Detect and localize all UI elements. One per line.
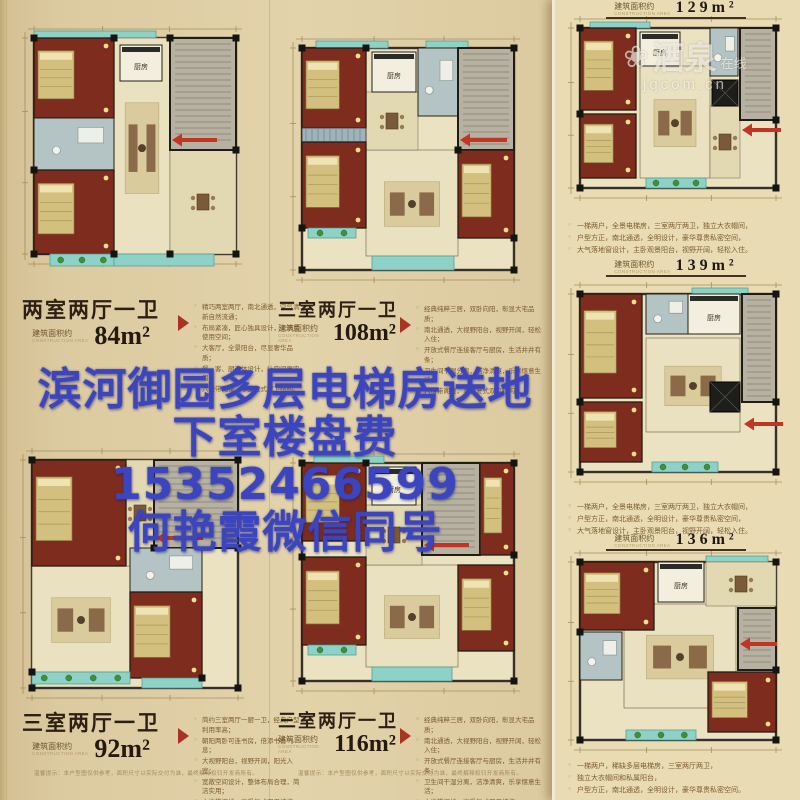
feature-bullet: 南北通透，大视野阳台，视野开阔，轻松入住； (416, 326, 546, 346)
svg-text:厨房: 厨房 (707, 313, 721, 322)
left-frame-line (6, 0, 7, 800)
feature-bullet: 一梯两户，全景电梯房，三室两厅两卫，独立大衣帽间， (568, 222, 796, 233)
area-prefix-en: CONSTRUCTION AREA (32, 338, 88, 343)
pointer-triangle-icon (178, 315, 189, 331)
area-value: 116m² (334, 734, 396, 756)
watermark-domain: jqcom.cn (575, 76, 795, 93)
area-prefix-en: CONSTRUCTION AREA (278, 744, 328, 754)
feature-bullet: 一梯两户，全景电梯房，三室两厅两卫，独立大衣帽间， (568, 503, 796, 514)
area-prefix: 建筑面积约CONSTRUCTION AREA (278, 735, 328, 755)
watermark: ❀ 酒泉 在线 jqcom.cn (575, 42, 795, 93)
feature-bullet: 南北通透，大视野阳台，视野开阔，轻松入住； (416, 737, 546, 757)
plan-title: 三室两厅一卫 (278, 301, 396, 320)
overlay-line-3: 何艳霞微信同号 (25, 509, 545, 557)
overlay-line-2: 下室楼盘费15352466599 (25, 414, 545, 509)
floor-plan-139sqm: 厨房 (560, 278, 796, 502)
svg-text:厨房: 厨房 (674, 581, 688, 590)
contact-overlay: 滨河御园多层电梯房送地 下室楼盘费15352466599 何艳霞微信同号 (25, 366, 545, 556)
area-value: 108m² (333, 323, 396, 345)
area-prefix: 建筑面积约CONSTRUCTION AREA (614, 260, 670, 274)
plan-84-title-block: 两室两厅一卫 建筑面积约CONSTRUCTION AREA 84m² (8, 299, 174, 347)
floor-plan-108sqm: 厨房 (274, 28, 542, 300)
area-prefix-en: CONSTRUCTION AREA (32, 751, 88, 756)
feature-bullet: 户型方正，南北通透，全明设计，豪华尊贵私密空间。 (568, 786, 796, 797)
plan-92-label-row: 三室两厅一卫 建筑面积约CONSTRUCTION AREA 92m² 简约三室两… (8, 712, 302, 800)
area-value: 139m² (676, 258, 738, 274)
area-prefix: 建筑面积约CONSTRUCTION AREA (32, 742, 88, 756)
watermark-suffix: 在线 (721, 53, 747, 72)
area-prefix-en: CONSTRUCTION AREA (614, 11, 670, 16)
feature-bullet: 经典纯粹三居，双卧向阳，彰显大宅品质； (416, 305, 546, 325)
feature-bullet: 卫生间干湿分离，洁净清爽，乐享惬意生活； (416, 778, 546, 798)
pointer-triangle-icon (400, 728, 411, 744)
disclaimer-left: 温馨提示：本户型图仅供参考，面积尺寸以实际交付为准，最终解释权归开发商所有。 (34, 769, 258, 777)
overlay-line-1: 滨河御园多层电梯房送地 (25, 366, 545, 414)
area-prefix-en: CONSTRUCTION AREA (278, 333, 327, 343)
area-value: 136m² (676, 532, 738, 548)
area-prefix: 建筑面积约CONSTRUCTION AREA (614, 534, 670, 548)
plan-136-area-label: 建筑面积约CONSTRUCTION AREA 136m² (556, 528, 796, 551)
plan-116-title-block: 三室两厅一卫 建筑面积约CONSTRUCTION AREA 116m² (278, 712, 396, 755)
area-prefix: 建筑面积约CONSTRUCTION AREA (32, 329, 88, 343)
plan-title: 两室两厅一卫 (8, 299, 174, 321)
area-value: 84m² (94, 324, 149, 347)
plan-title: 三室两厅一卫 (278, 712, 396, 731)
disclaimer-mid: 温馨提示：本户型图仅供参考，面积尺寸以实际交付为准，最终解释权归开发商所有。 (298, 769, 542, 777)
pointer-triangle-icon (178, 728, 189, 744)
plan-92-title-block: 三室两厅一卫 建筑面积约CONSTRUCTION AREA 92m² (8, 712, 174, 760)
watermark-flower-icon: ❀ (623, 43, 648, 73)
feature-bullet: 独立大衣帽间和私属阳台， (568, 774, 796, 785)
svg-text:厨房: 厨房 (134, 62, 148, 71)
svg-text:厨房: 厨房 (387, 71, 401, 80)
feature-bullet: 经典纯粹三居，双卧向阳，彰显大宅品质； (416, 716, 546, 736)
flyer-page: 厨房 厨房 厨房 厨房 厨房 厨房 两室两厅一卫 建筑面积约CONSTRUCTI… (0, 0, 800, 800)
area-value: 92m² (94, 737, 149, 760)
plan-title: 三室两厅一卫 (8, 712, 174, 734)
area-prefix-en: CONSTRUCTION AREA (614, 269, 670, 274)
plan-129-area-label: 建筑面积约CONSTRUCTION AREA 129m² (556, 0, 796, 19)
area-prefix: 建筑面积约CONSTRUCTION AREA (278, 324, 327, 344)
area-value: 129m² (676, 0, 738, 16)
floor-plan-136sqm: 厨房 (560, 548, 796, 756)
plan-139-area-label: 建筑面积约CONSTRUCTION AREA 139m² (556, 254, 796, 277)
area-prefix-en: CONSTRUCTION AREA (614, 543, 670, 548)
pointer-triangle-icon (400, 317, 411, 333)
feature-bullet: 户型方正，南北通透，全明设计，豪华尊贵私密空间， (568, 234, 796, 245)
plan-116-features: 经典纯粹三居，双卧向阳，彰显大宅品质；南北通透，大视野阳台，视野开阔，轻松入住；… (416, 716, 546, 800)
feature-bullet: 户型方正，南北通透，全明设计，豪华尊贵私密空间， (568, 515, 796, 526)
feature-bullet: 一梯两户，稀缺多层电梯房，三室两厅两卫， (568, 762, 796, 773)
plan-136-features: 一梯两户，稀缺多层电梯房，三室两厅两卫，独立大衣帽间和私属阳台，户型方正，南北通… (568, 762, 796, 798)
plan-129-features: 一梯两户，全景电梯房，三室两厅两卫，独立大衣帽间，户型方正，南北通透，全明设计，… (568, 222, 796, 258)
feature-bullet: 开放式餐厅连接客厅与厨房，生活井井有条； (416, 346, 546, 366)
watermark-brand: 酒泉 (653, 42, 717, 74)
plan-108-title-block: 三室两厅一卫 建筑面积约CONSTRUCTION AREA 108m² (278, 301, 396, 344)
area-prefix: 建筑面积约CONSTRUCTION AREA (614, 2, 670, 16)
plan-116-label-row: 三室两厅一卫 建筑面积约CONSTRUCTION AREA 116m² 经典纯粹… (278, 712, 546, 800)
floor-plan-84sqm: 厨房 (10, 18, 260, 298)
